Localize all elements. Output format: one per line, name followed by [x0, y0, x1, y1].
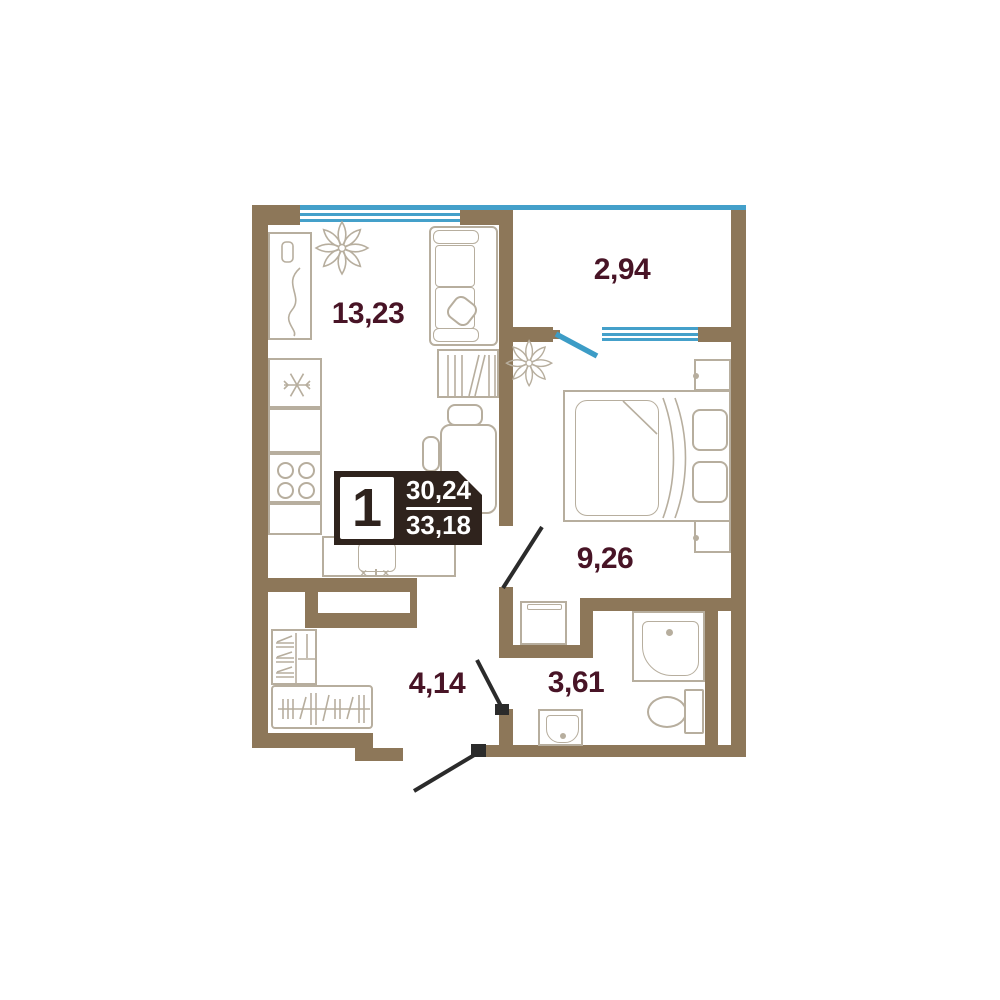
- sink-drain: [560, 733, 566, 739]
- entrance-door-leaf: [414, 744, 486, 791]
- room-label-bathroom: 3,61: [548, 666, 604, 700]
- window-stripe: [602, 333, 698, 336]
- dining-chair-left: [422, 436, 440, 472]
- plant-icon: [312, 218, 372, 278]
- washing-machine: [520, 601, 567, 645]
- fridge: [268, 358, 322, 408]
- wall-divider-upper: [499, 205, 513, 330]
- living-area-value: 30,24: [406, 477, 471, 504]
- wall-cupboard-cap: [305, 592, 318, 613]
- closet-hangers: [273, 687, 375, 731]
- sofa-armrest-bottom: [433, 328, 479, 342]
- wall-bottom-left: [252, 733, 373, 748]
- floor-plan: × ×: [0, 0, 1000, 1000]
- wall-right-exterior: [731, 210, 746, 757]
- window-stripe: [602, 327, 698, 330]
- nightstand-knob: [693, 535, 699, 541]
- nightstand-top: [694, 359, 731, 391]
- washing-machine-lid: [527, 604, 562, 610]
- storage-rack-hatch: [439, 351, 501, 400]
- wall-balcony-door-stub: [513, 327, 553, 342]
- bedroom-window: [602, 326, 698, 342]
- area-figures: 30,24 33,18: [401, 477, 476, 539]
- nightstand-bottom: [694, 520, 731, 553]
- toilet-tank: [684, 689, 704, 734]
- snowflake-icon: [270, 360, 324, 410]
- closet-shelves-hatch: [273, 631, 319, 687]
- room-label-balcony: 2,94: [594, 253, 650, 287]
- balcony-door-leaf: [556, 334, 597, 356]
- balcony-glazing-line: [300, 205, 746, 210]
- total-area-value: 33,18: [406, 512, 471, 539]
- sofa-cushion: [435, 245, 475, 287]
- stove-burner: [298, 462, 315, 479]
- apartment-info-badge: 1 30,24 33,18: [334, 471, 482, 545]
- wall-top-left-block: [252, 205, 300, 225]
- dining-chair-top: [447, 404, 483, 426]
- shower-tray: [632, 611, 705, 682]
- stove-burner: [298, 482, 315, 499]
- room-label-bedroom: 9,26: [577, 542, 633, 576]
- wall-niche-bottom: [499, 645, 593, 658]
- stove: [268, 453, 322, 503]
- bedroom-door-leaf: [503, 527, 542, 588]
- bathroom-door-leaf: [477, 660, 509, 715]
- toilet-bowl: [647, 696, 687, 728]
- wall-entrance-step: [355, 748, 403, 761]
- bed: [563, 390, 731, 522]
- kitchen-cabinet-low: [268, 503, 322, 535]
- room-label-hallway: 4,14: [409, 667, 465, 701]
- nightstand-knob: [693, 373, 699, 379]
- wall-cupboard-bottom: [305, 613, 417, 628]
- tv-cabinet: [268, 232, 312, 340]
- faucet-handles: × ×: [360, 566, 395, 580]
- shower-drain: [666, 629, 673, 636]
- room-label-living-kitchen: 13,23: [332, 297, 405, 331]
- closet-hanging-rail: [271, 685, 373, 729]
- wall-bedroom-window-block: [698, 327, 732, 342]
- wall-kitchen-hall: [252, 578, 417, 592]
- stove-burner: [277, 482, 294, 499]
- wall-bathroom-top: [580, 598, 746, 611]
- wall-bathroom-right: [705, 611, 718, 757]
- bed-pillow: [692, 461, 728, 503]
- plant-icon: [507, 341, 559, 393]
- stove-burner: [277, 462, 294, 479]
- wall-left-exterior: [252, 205, 268, 748]
- window-stripe: [300, 213, 460, 216]
- tv-cabinet-decor: [270, 234, 314, 342]
- wall-bottom-right: [485, 745, 746, 757]
- bed-pillow: [692, 409, 728, 451]
- kitchen-cabinet: [268, 408, 322, 453]
- window-stripe: [602, 338, 698, 341]
- bathroom-sink: [538, 709, 583, 746]
- rooms-count: 1: [340, 477, 394, 539]
- storage-rack: [437, 349, 499, 398]
- sofa: [429, 226, 498, 346]
- wall-divider-pier2: [499, 709, 513, 747]
- sofa-armrest-top: [433, 230, 479, 244]
- closet-shelves: [271, 629, 317, 685]
- wall-balcony-door-jamb: [553, 330, 560, 339]
